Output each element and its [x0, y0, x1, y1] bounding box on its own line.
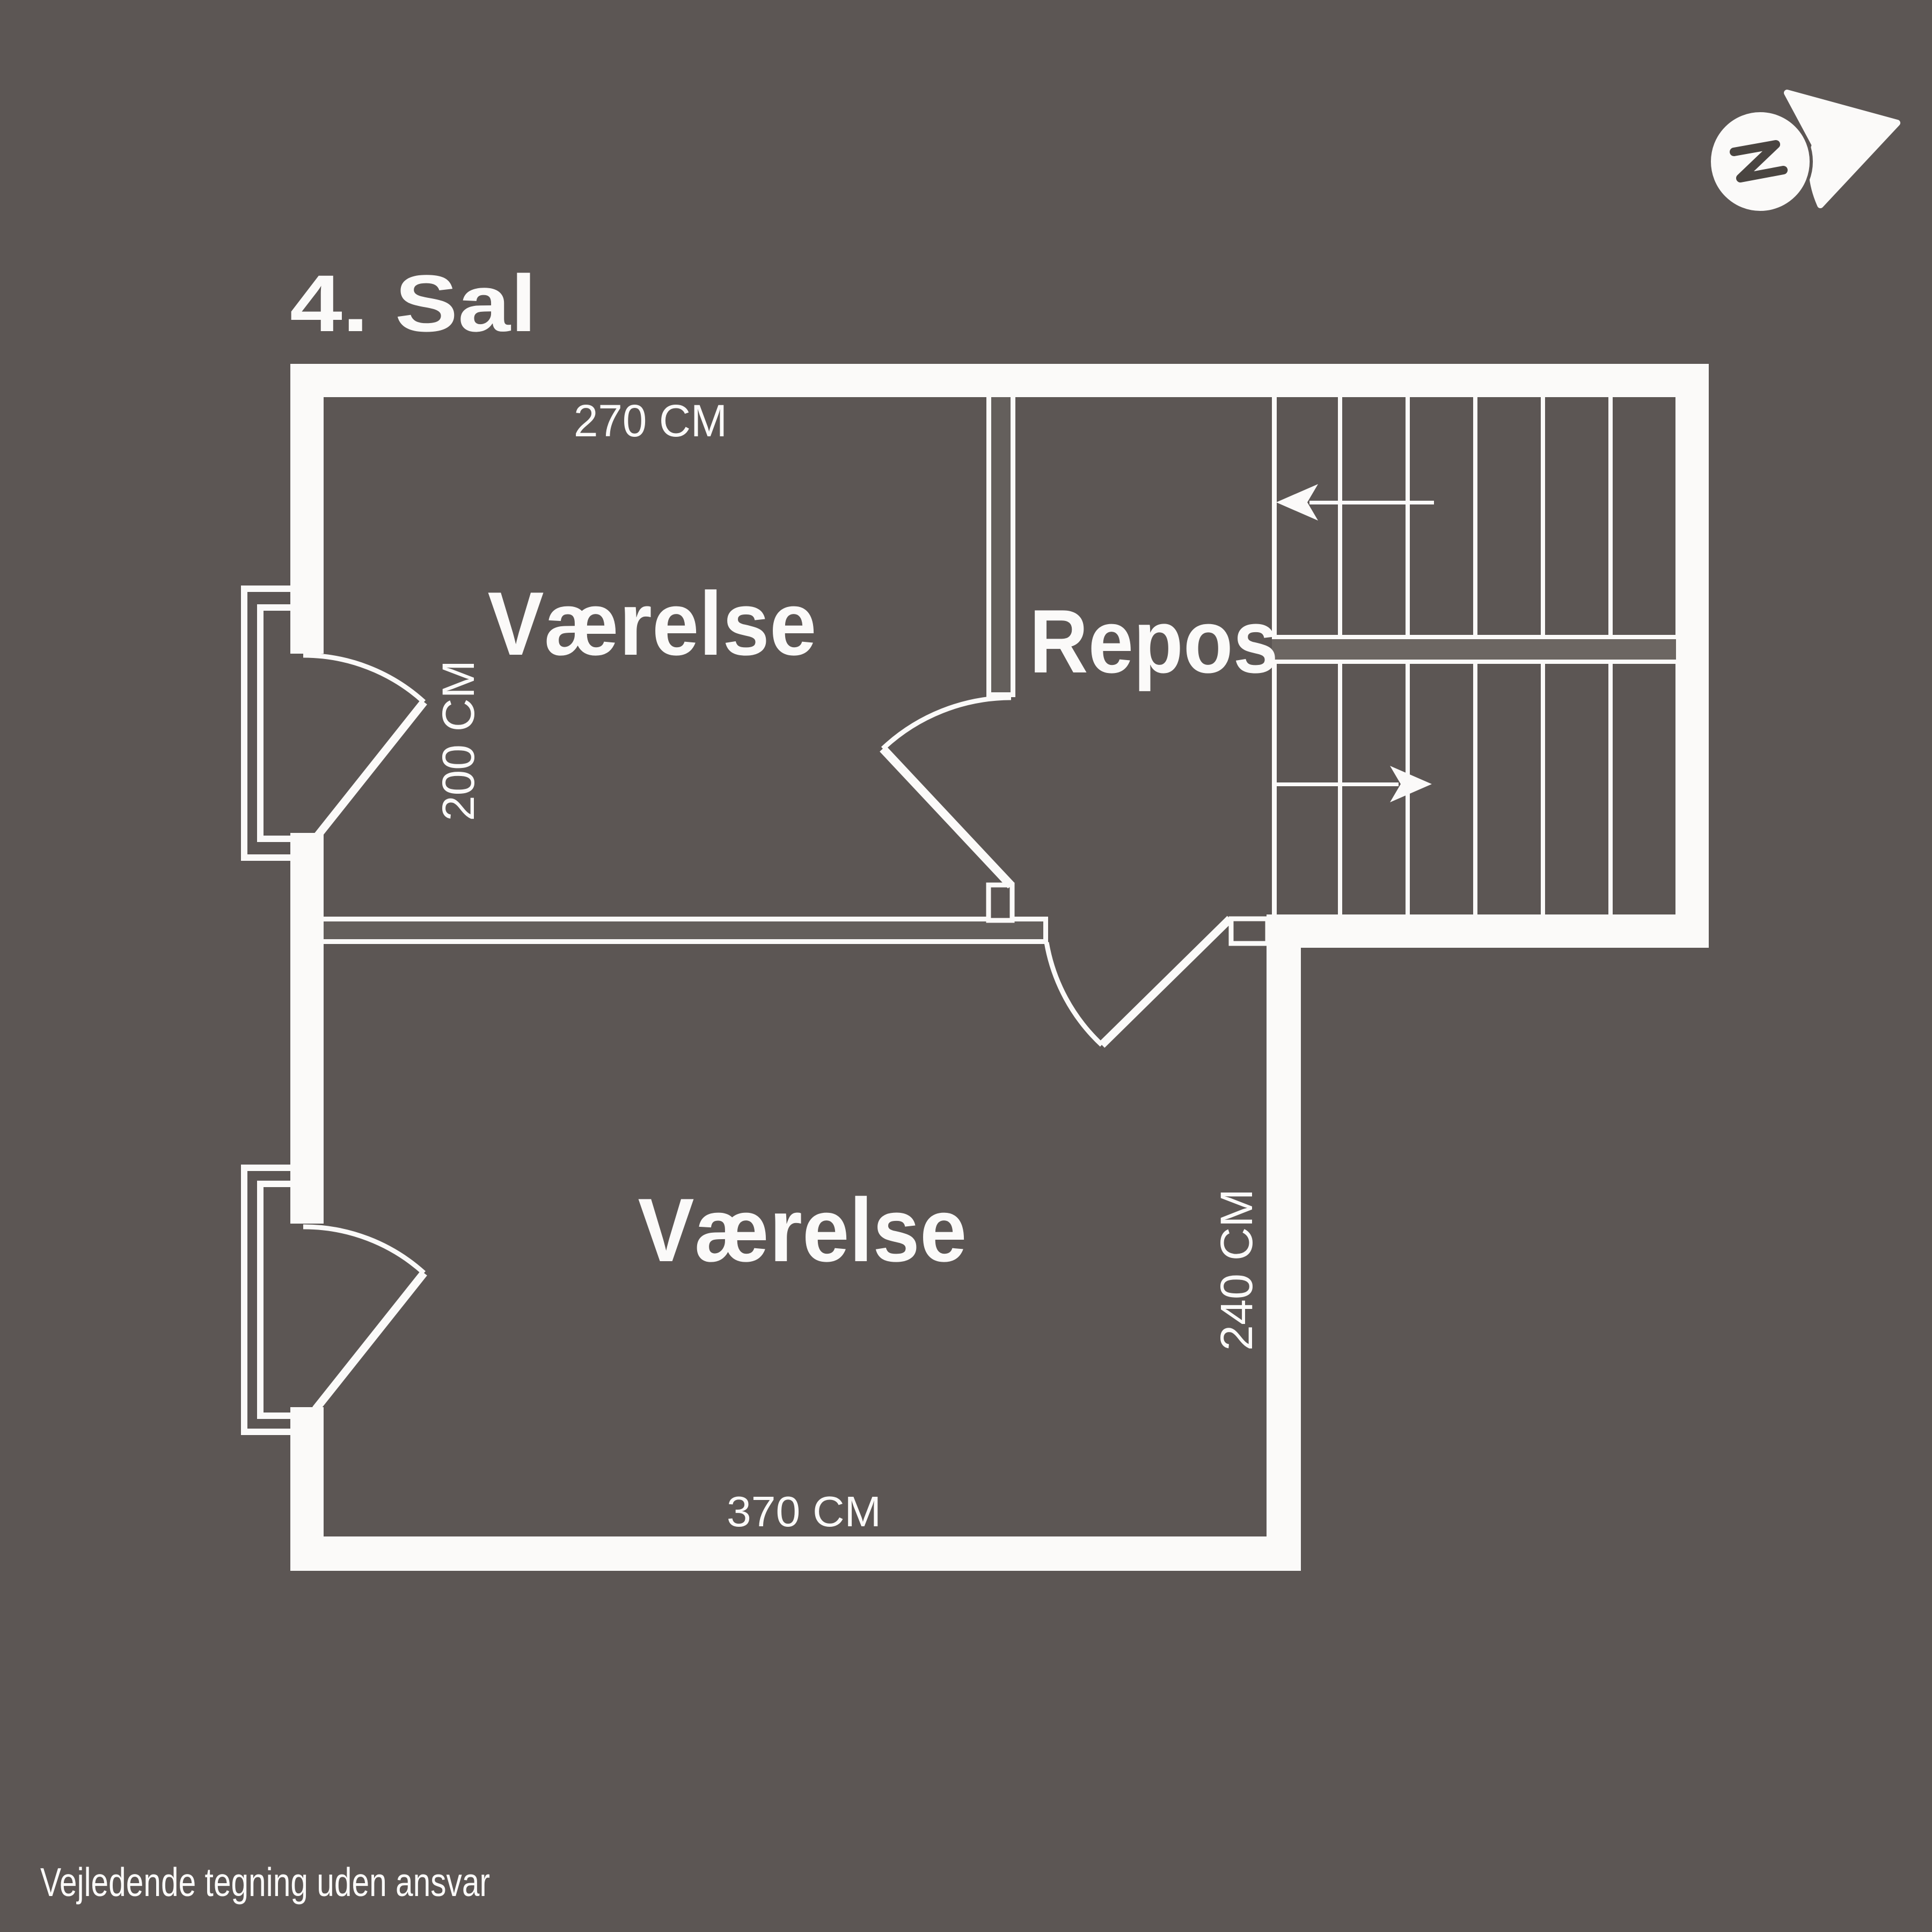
svg-text:Værelse: Værelse: [488, 573, 817, 674]
svg-text:270 CM: 270 CM: [574, 396, 727, 446]
svg-text:240 CM: 240 CM: [1211, 1189, 1262, 1351]
svg-text:4. Sal: 4. Sal: [290, 258, 537, 348]
svg-text:370 CM: 370 CM: [727, 1488, 881, 1535]
svg-text:Vejledende tegning uden ansvar: Vejledende tegning uden ansvar: [40, 1860, 490, 1905]
svg-text:Værelse: Værelse: [638, 1180, 967, 1280]
svg-text:Repos: Repos: [1029, 591, 1278, 692]
svg-text:200 CM: 200 CM: [433, 660, 484, 821]
